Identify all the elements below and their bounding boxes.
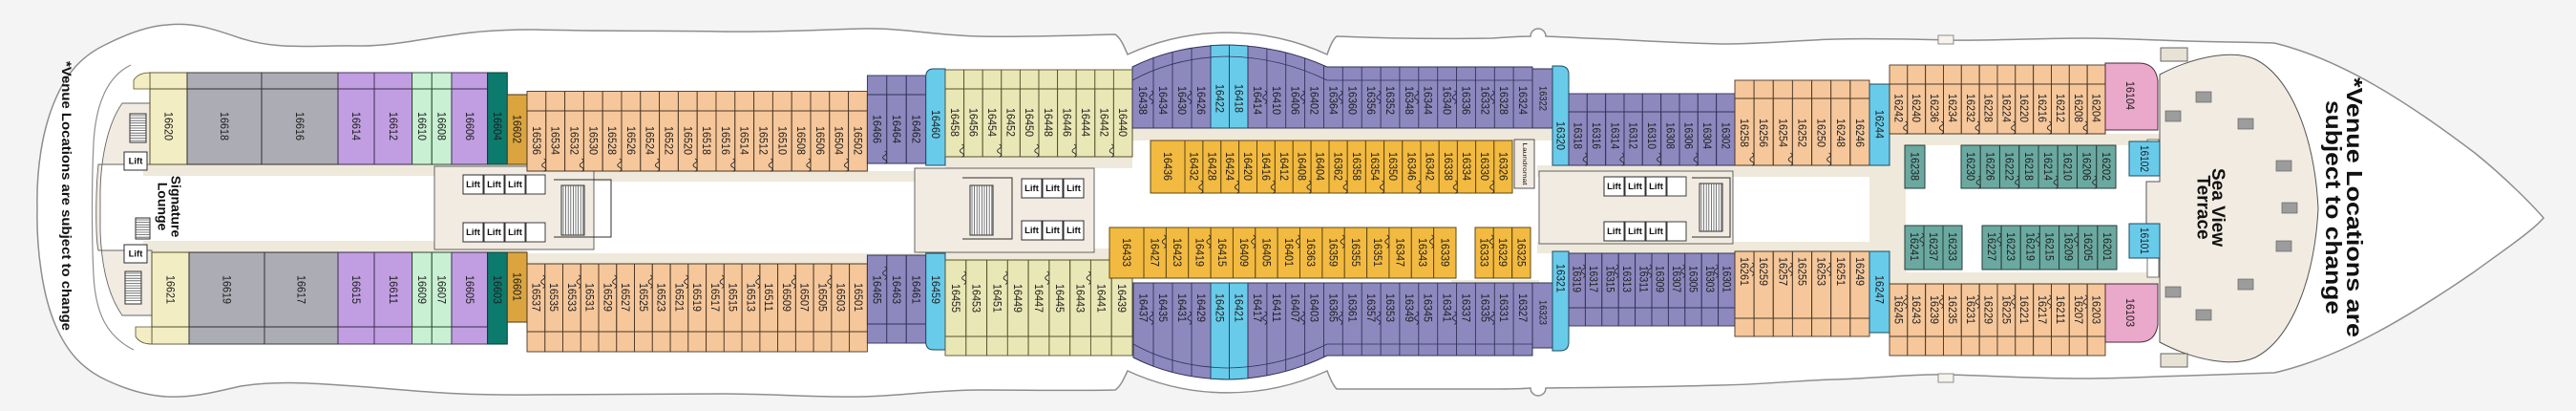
svg-text:16614: 16614 bbox=[349, 112, 363, 141]
svg-text:16501: 16501 bbox=[852, 283, 865, 312]
svg-text:16361: 16361 bbox=[1345, 293, 1359, 322]
svg-text:16443: 16443 bbox=[1074, 284, 1087, 313]
svg-text:16442: 16442 bbox=[1098, 108, 1111, 137]
svg-text:16533: 16533 bbox=[565, 283, 579, 312]
svg-text:16203: 16203 bbox=[2090, 295, 2103, 324]
svg-text:16610: 16610 bbox=[415, 112, 429, 141]
svg-text:16237: 16237 bbox=[1927, 232, 1940, 261]
svg-text:16519: 16519 bbox=[690, 283, 704, 312]
svg-text:16210: 16210 bbox=[2060, 152, 2074, 181]
svg-text:16248: 16248 bbox=[1834, 119, 1848, 147]
svg-text:16535: 16535 bbox=[547, 283, 560, 312]
svg-text:Lift: Lift bbox=[1066, 184, 1082, 194]
svg-text:Lift: Lift bbox=[487, 180, 502, 190]
svg-text:16103: 16103 bbox=[2123, 298, 2137, 327]
svg-text:16447: 16447 bbox=[1032, 284, 1045, 313]
svg-text:16254: 16254 bbox=[1776, 119, 1789, 147]
svg-text:16517: 16517 bbox=[708, 283, 722, 312]
svg-text:16415: 16415 bbox=[1215, 238, 1229, 267]
svg-text:16308: 16308 bbox=[1663, 122, 1677, 149]
svg-text:16412: 16412 bbox=[1277, 152, 1291, 181]
svg-text:16605: 16605 bbox=[463, 275, 476, 304]
svg-text:16513: 16513 bbox=[745, 283, 758, 312]
svg-text:16316: 16316 bbox=[1590, 122, 1603, 149]
svg-text:16402: 16402 bbox=[1308, 86, 1321, 115]
svg-text:Lift: Lift bbox=[1045, 184, 1061, 194]
svg-text:16528: 16528 bbox=[605, 126, 619, 155]
svg-text:Lift: Lift bbox=[487, 227, 502, 238]
svg-text:16463: 16463 bbox=[890, 275, 903, 304]
svg-text:16232: 16232 bbox=[1964, 94, 1977, 122]
svg-text:16466: 16466 bbox=[871, 115, 884, 143]
svg-text:16432: 16432 bbox=[1187, 152, 1200, 181]
svg-text:16536: 16536 bbox=[530, 126, 543, 155]
svg-text:16401: 16401 bbox=[1282, 238, 1296, 267]
svg-text:16214: 16214 bbox=[2041, 152, 2055, 181]
svg-text:16365: 16365 bbox=[1326, 293, 1340, 322]
svg-text:16208: 16208 bbox=[2072, 94, 2085, 122]
svg-text:16221: 16221 bbox=[2017, 295, 2031, 324]
svg-text:Lift: Lift bbox=[1066, 226, 1082, 236]
svg-text:16320: 16320 bbox=[1554, 121, 1568, 150]
svg-text:16460: 16460 bbox=[929, 110, 942, 139]
svg-text:16421: 16421 bbox=[1232, 293, 1245, 322]
svg-text:16430: 16430 bbox=[1175, 86, 1189, 115]
svg-text:16423: 16423 bbox=[1171, 238, 1184, 267]
svg-text:16302: 16302 bbox=[1719, 122, 1732, 149]
svg-text:16414: 16414 bbox=[1251, 86, 1264, 115]
svg-text:16259: 16259 bbox=[1757, 257, 1770, 286]
svg-text:16228: 16228 bbox=[1982, 94, 1995, 122]
svg-text:16420: 16420 bbox=[1241, 152, 1255, 181]
svg-text:16452: 16452 bbox=[1004, 108, 1018, 137]
svg-text:16234: 16234 bbox=[1946, 94, 1959, 122]
svg-text:16229: 16229 bbox=[1982, 295, 1995, 324]
svg-text:16410: 16410 bbox=[1270, 86, 1283, 115]
svg-text:Lift: Lift bbox=[1649, 227, 1664, 237]
svg-text:16514: 16514 bbox=[738, 126, 751, 155]
svg-text:16341: 16341 bbox=[1441, 293, 1454, 322]
svg-text:16364: 16364 bbox=[1326, 86, 1340, 115]
svg-text:16527: 16527 bbox=[619, 283, 632, 312]
svg-text:16241: 16241 bbox=[1908, 232, 1921, 261]
svg-text:16329: 16329 bbox=[1496, 238, 1510, 267]
svg-text:16525: 16525 bbox=[637, 283, 650, 312]
svg-text:subject to change: subject to change bbox=[2321, 100, 2346, 314]
svg-text:16425: 16425 bbox=[1214, 293, 1227, 322]
svg-text:Lift: Lift bbox=[466, 180, 481, 190]
svg-text:16603: 16603 bbox=[491, 275, 504, 304]
svg-text:16247: 16247 bbox=[1873, 275, 1887, 304]
svg-text:16201: 16201 bbox=[2101, 232, 2114, 261]
svg-text:Lift: Lift bbox=[129, 249, 144, 260]
svg-text:16416: 16416 bbox=[1259, 152, 1273, 181]
svg-text:16301: 16301 bbox=[1720, 266, 1733, 292]
svg-text:16446: 16446 bbox=[1060, 108, 1073, 137]
svg-text:SignatureLounge: SignatureLounge bbox=[156, 176, 184, 238]
svg-text:16411: 16411 bbox=[1270, 293, 1283, 322]
svg-text:Lift: Lift bbox=[129, 157, 144, 167]
svg-text:16324: 16324 bbox=[1516, 86, 1530, 115]
svg-text:16424: 16424 bbox=[1223, 152, 1236, 181]
svg-text:16459: 16459 bbox=[929, 275, 942, 304]
svg-text:16261: 16261 bbox=[1738, 257, 1751, 286]
svg-text:16330: 16330 bbox=[1478, 152, 1491, 181]
svg-text:Lift: Lift bbox=[1607, 182, 1622, 192]
svg-text:Lift: Lift bbox=[1045, 226, 1061, 236]
svg-text:16503: 16503 bbox=[834, 283, 847, 312]
svg-text:16215: 16215 bbox=[2043, 232, 2057, 261]
svg-text:16461: 16461 bbox=[910, 275, 923, 304]
svg-text:16222: 16222 bbox=[2003, 152, 2016, 181]
svg-text:16451: 16451 bbox=[990, 284, 1003, 313]
svg-text:16621: 16621 bbox=[164, 275, 178, 304]
svg-text:16223: 16223 bbox=[2004, 232, 2017, 261]
svg-text:Lift: Lift bbox=[1024, 184, 1040, 194]
svg-text:16231: 16231 bbox=[1964, 295, 1977, 324]
svg-text:16531: 16531 bbox=[583, 283, 597, 312]
svg-text:Sea ViewTerrace: Sea ViewTerrace bbox=[2193, 168, 2228, 247]
svg-text:16606: 16606 bbox=[463, 112, 476, 141]
svg-text:16462: 16462 bbox=[910, 115, 923, 143]
svg-text:16419: 16419 bbox=[1193, 238, 1206, 267]
svg-text:16409: 16409 bbox=[1237, 238, 1251, 267]
svg-text:16506: 16506 bbox=[813, 126, 827, 155]
svg-text:16331: 16331 bbox=[1497, 293, 1510, 322]
svg-text:16509: 16509 bbox=[780, 283, 793, 312]
svg-text:16358: 16358 bbox=[1350, 152, 1363, 181]
svg-text:16226: 16226 bbox=[1983, 152, 1996, 181]
svg-text:16510: 16510 bbox=[775, 126, 789, 155]
svg-text:16217: 16217 bbox=[2036, 295, 2049, 324]
svg-text:16235: 16235 bbox=[1946, 295, 1959, 324]
svg-text:16422: 16422 bbox=[1214, 84, 1227, 113]
svg-text:16205: 16205 bbox=[2081, 232, 2095, 261]
svg-text:16323: 16323 bbox=[1537, 300, 1549, 325]
svg-text:16339: 16339 bbox=[1438, 238, 1451, 267]
svg-text:16342: 16342 bbox=[1424, 152, 1437, 181]
svg-text:16220: 16220 bbox=[2017, 94, 2031, 122]
svg-text:16224: 16224 bbox=[1999, 94, 2013, 122]
svg-text:16515: 16515 bbox=[727, 283, 740, 312]
svg-text:16449: 16449 bbox=[1011, 284, 1024, 313]
svg-text:16408: 16408 bbox=[1296, 152, 1309, 181]
svg-text:16418: 16418 bbox=[1232, 84, 1245, 113]
svg-text:16507: 16507 bbox=[798, 283, 812, 312]
svg-text:16435: 16435 bbox=[1156, 293, 1170, 322]
svg-text:Lift: Lift bbox=[1607, 227, 1622, 237]
svg-text:16445: 16445 bbox=[1053, 284, 1066, 313]
svg-text:16312: 16312 bbox=[1627, 122, 1640, 149]
svg-text:16335: 16335 bbox=[1478, 293, 1491, 322]
svg-text:16417: 16417 bbox=[1251, 293, 1264, 322]
svg-text:16608: 16608 bbox=[435, 112, 449, 141]
svg-text:16354: 16354 bbox=[1368, 152, 1382, 181]
svg-text:16348: 16348 bbox=[1403, 86, 1416, 115]
svg-text:16407: 16407 bbox=[1289, 293, 1302, 322]
svg-text:16253: 16253 bbox=[1815, 257, 1828, 286]
svg-text:16306: 16306 bbox=[1682, 122, 1696, 149]
svg-text:16428: 16428 bbox=[1205, 152, 1218, 181]
svg-text:16405: 16405 bbox=[1260, 238, 1274, 267]
svg-text:16611: 16611 bbox=[387, 275, 400, 304]
svg-text:16258: 16258 bbox=[1738, 119, 1751, 147]
svg-text:16337: 16337 bbox=[1460, 293, 1473, 322]
svg-text:16305: 16305 bbox=[1687, 266, 1700, 292]
svg-text:16504: 16504 bbox=[833, 126, 846, 155]
svg-text:16340: 16340 bbox=[1441, 86, 1454, 115]
svg-text:16516: 16516 bbox=[719, 126, 732, 155]
svg-text:16233: 16233 bbox=[1946, 232, 1959, 261]
svg-text:16252: 16252 bbox=[1796, 119, 1809, 147]
svg-text:Lift: Lift bbox=[508, 227, 523, 238]
svg-text:16444: 16444 bbox=[1079, 108, 1092, 137]
svg-text:16257: 16257 bbox=[1776, 257, 1789, 286]
svg-text:16321: 16321 bbox=[1554, 264, 1568, 292]
svg-text:16404: 16404 bbox=[1314, 152, 1327, 181]
svg-text:16250: 16250 bbox=[1815, 119, 1828, 147]
svg-text:16309: 16309 bbox=[1654, 266, 1667, 292]
svg-text:Laundromat: Laundromat bbox=[1521, 143, 1528, 185]
svg-text:16455: 16455 bbox=[949, 284, 962, 313]
svg-text:16102: 16102 bbox=[2138, 145, 2151, 172]
svg-text:16327: 16327 bbox=[1516, 293, 1530, 322]
svg-text:16406: 16406 bbox=[1289, 86, 1302, 115]
svg-text:16601: 16601 bbox=[511, 272, 524, 301]
svg-text:16363: 16363 bbox=[1304, 238, 1318, 267]
svg-text:16616: 16616 bbox=[293, 112, 306, 141]
svg-text:16520: 16520 bbox=[681, 126, 694, 155]
svg-text:16360: 16360 bbox=[1345, 86, 1359, 115]
svg-text:16352: 16352 bbox=[1383, 86, 1397, 115]
svg-text:16458: 16458 bbox=[948, 108, 961, 137]
svg-text:16403: 16403 bbox=[1308, 293, 1321, 322]
svg-text:16244: 16244 bbox=[1873, 110, 1887, 139]
svg-text:16454: 16454 bbox=[985, 108, 999, 137]
svg-text:16450: 16450 bbox=[1023, 108, 1036, 137]
svg-text:16350: 16350 bbox=[1386, 152, 1400, 181]
svg-text:16344: 16344 bbox=[1422, 86, 1435, 115]
svg-text:16465: 16465 bbox=[871, 275, 884, 304]
svg-text:16345: 16345 bbox=[1422, 293, 1435, 322]
svg-text:16502: 16502 bbox=[852, 126, 865, 155]
svg-text:16362: 16362 bbox=[1332, 152, 1345, 181]
svg-text:16240: 16240 bbox=[1910, 94, 1923, 122]
svg-text:16334: 16334 bbox=[1460, 152, 1473, 181]
svg-text:Lift: Lift bbox=[466, 227, 481, 238]
svg-text:16448: 16448 bbox=[1042, 108, 1055, 137]
svg-text:16322: 16322 bbox=[1537, 86, 1549, 111]
svg-text:16526: 16526 bbox=[624, 126, 638, 155]
svg-text:16251: 16251 bbox=[1834, 257, 1848, 286]
svg-text:16426: 16426 bbox=[1194, 86, 1208, 115]
svg-text:Lift: Lift bbox=[1649, 182, 1664, 192]
svg-text:16236: 16236 bbox=[1928, 94, 1941, 122]
svg-text:16615: 16615 bbox=[349, 275, 363, 304]
svg-text:16317: 16317 bbox=[1587, 266, 1600, 292]
svg-text:16239: 16239 bbox=[1928, 295, 1941, 324]
svg-text:16534: 16534 bbox=[549, 126, 562, 155]
svg-text:16202: 16202 bbox=[2100, 152, 2113, 181]
svg-text:16522: 16522 bbox=[663, 126, 676, 155]
svg-text:16313: 16313 bbox=[1620, 266, 1634, 292]
svg-text:*Venue Locations are subject t: *Venue Locations are subject to change bbox=[59, 61, 74, 331]
svg-text:16318: 16318 bbox=[1572, 122, 1585, 149]
svg-text:Lift: Lift bbox=[1024, 226, 1040, 236]
svg-text:16242: 16242 bbox=[1891, 94, 1905, 122]
svg-text:16353: 16353 bbox=[1383, 293, 1397, 322]
svg-text:16343: 16343 bbox=[1416, 238, 1429, 267]
svg-text:16508: 16508 bbox=[794, 126, 808, 155]
svg-text:16256: 16256 bbox=[1757, 119, 1770, 147]
svg-text:16357: 16357 bbox=[1364, 293, 1378, 322]
svg-text:16431: 16431 bbox=[1175, 293, 1189, 322]
svg-text:16521: 16521 bbox=[672, 283, 686, 312]
svg-text:16207: 16207 bbox=[2072, 295, 2085, 324]
svg-text:16427: 16427 bbox=[1149, 238, 1162, 267]
svg-text:16338: 16338 bbox=[1442, 152, 1455, 181]
svg-text:16440: 16440 bbox=[1116, 108, 1130, 137]
svg-text:16620: 16620 bbox=[162, 112, 176, 141]
svg-text:16511: 16511 bbox=[762, 283, 775, 312]
svg-text:16612: 16612 bbox=[387, 112, 400, 141]
svg-text:16227: 16227 bbox=[1985, 232, 1998, 261]
svg-text:16359: 16359 bbox=[1327, 238, 1341, 267]
svg-text:16255: 16255 bbox=[1796, 257, 1809, 286]
svg-text:16436: 16436 bbox=[1161, 152, 1174, 181]
svg-text:16609: 16609 bbox=[415, 275, 429, 304]
svg-text:16505: 16505 bbox=[816, 283, 830, 312]
svg-text:16618: 16618 bbox=[218, 112, 231, 141]
svg-text:16310: 16310 bbox=[1645, 122, 1658, 149]
svg-text:16532: 16532 bbox=[568, 126, 581, 155]
svg-text:16209: 16209 bbox=[2062, 232, 2076, 261]
svg-text:16225: 16225 bbox=[1999, 295, 2013, 324]
svg-text:16212: 16212 bbox=[2054, 94, 2067, 122]
svg-text:16437: 16437 bbox=[1137, 293, 1151, 322]
svg-text:16101: 16101 bbox=[2138, 227, 2151, 254]
svg-text:16211: 16211 bbox=[2054, 295, 2067, 324]
svg-text:16438: 16438 bbox=[1136, 86, 1150, 115]
svg-text:16304: 16304 bbox=[1700, 122, 1714, 149]
svg-text:16249: 16249 bbox=[1853, 257, 1867, 286]
svg-text:Lift: Lift bbox=[508, 180, 523, 190]
svg-text:16434: 16434 bbox=[1156, 86, 1170, 115]
svg-text:16537: 16537 bbox=[529, 283, 542, 312]
svg-text:16433: 16433 bbox=[1120, 238, 1133, 267]
svg-text:16619: 16619 bbox=[221, 275, 234, 304]
svg-text:16104: 16104 bbox=[2123, 81, 2137, 110]
svg-text:16204: 16204 bbox=[2090, 94, 2103, 122]
svg-text:16328: 16328 bbox=[1497, 86, 1510, 115]
svg-text:16246: 16246 bbox=[1853, 119, 1867, 147]
svg-text:16523: 16523 bbox=[655, 283, 668, 312]
svg-text:Lift: Lift bbox=[1628, 227, 1643, 237]
svg-text:16349: 16349 bbox=[1403, 293, 1416, 322]
svg-text:16326: 16326 bbox=[1496, 152, 1510, 181]
svg-text:16347: 16347 bbox=[1394, 238, 1407, 267]
svg-text:16218: 16218 bbox=[2022, 152, 2036, 181]
svg-text:16530: 16530 bbox=[586, 126, 600, 155]
svg-text:16453: 16453 bbox=[970, 284, 983, 313]
svg-text:16604: 16604 bbox=[491, 112, 504, 141]
svg-text:16355: 16355 bbox=[1349, 238, 1362, 267]
svg-text:16524: 16524 bbox=[644, 126, 657, 155]
svg-text:16518: 16518 bbox=[700, 126, 713, 155]
svg-text:16346: 16346 bbox=[1404, 152, 1418, 181]
svg-text:16238: 16238 bbox=[1909, 152, 1922, 181]
svg-text:16332: 16332 bbox=[1478, 86, 1491, 115]
svg-text:16607: 16607 bbox=[435, 275, 449, 304]
svg-text:16325: 16325 bbox=[1514, 238, 1528, 267]
svg-text:16439: 16439 bbox=[1115, 284, 1129, 313]
svg-text:16230: 16230 bbox=[1964, 152, 1977, 181]
svg-text:16336: 16336 bbox=[1460, 86, 1473, 115]
svg-text:16206: 16206 bbox=[2080, 152, 2094, 181]
svg-text:Lift: Lift bbox=[1628, 182, 1643, 192]
svg-text:16216: 16216 bbox=[2036, 94, 2049, 122]
svg-text:16314: 16314 bbox=[1608, 122, 1621, 149]
svg-text:16333: 16333 bbox=[1478, 238, 1491, 267]
svg-text:16512: 16512 bbox=[757, 126, 771, 155]
svg-text:16245: 16245 bbox=[1891, 295, 1905, 324]
svg-text:16441: 16441 bbox=[1094, 284, 1108, 313]
svg-text:16356: 16356 bbox=[1364, 86, 1378, 115]
svg-text:16602: 16602 bbox=[511, 115, 524, 143]
svg-text:16464: 16464 bbox=[890, 115, 903, 143]
svg-text:16529: 16529 bbox=[601, 283, 614, 312]
svg-text:16617: 16617 bbox=[295, 275, 308, 304]
svg-text:16219: 16219 bbox=[2023, 232, 2037, 261]
svg-text:16243: 16243 bbox=[1910, 295, 1923, 324]
svg-text:16456: 16456 bbox=[966, 108, 980, 137]
svg-text:16429: 16429 bbox=[1194, 293, 1208, 322]
svg-text:16351: 16351 bbox=[1371, 238, 1384, 267]
